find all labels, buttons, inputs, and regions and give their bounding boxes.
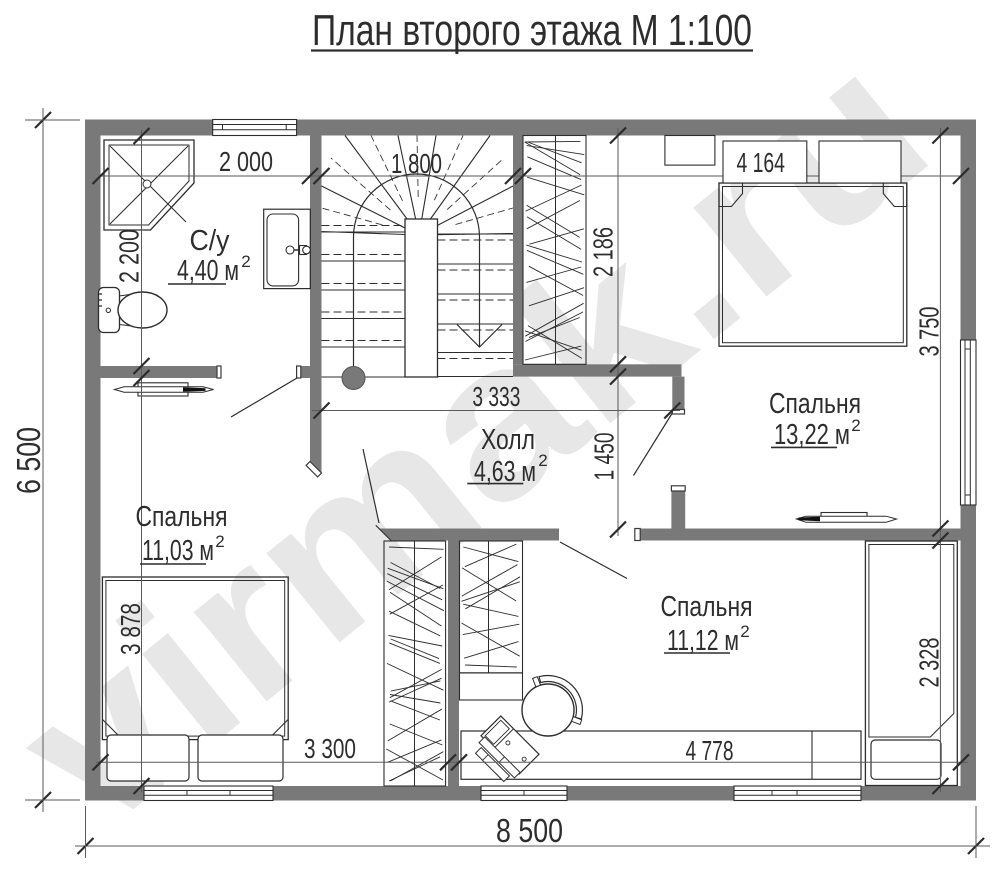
svg-text:2 328: 2 328: [914, 638, 945, 688]
svg-text:План второго этажа М 1:100: План второго этажа М 1:100: [312, 6, 752, 55]
svg-text:2: 2: [851, 416, 860, 435]
svg-text:3 333: 3 333: [472, 381, 520, 412]
svg-text:4 778: 4 778: [686, 735, 734, 766]
svg-text:2 200: 2 200: [114, 229, 145, 283]
svg-text:С/у: С/у: [190, 225, 231, 257]
svg-text:4 164: 4 164: [736, 147, 785, 178]
svg-text:Спальня: Спальня: [661, 591, 753, 623]
svg-text:Спальня: Спальня: [136, 501, 228, 533]
svg-text:11,03 м: 11,03 м: [142, 535, 214, 567]
svg-text:2: 2: [538, 451, 547, 470]
svg-text:Холл: Холл: [481, 424, 535, 456]
svg-text:1 800: 1 800: [391, 148, 442, 179]
svg-text:6 500: 6 500: [10, 427, 47, 494]
svg-text:3 300: 3 300: [304, 733, 356, 764]
svg-text:13,22 м: 13,22 м: [774, 419, 850, 451]
svg-text:2: 2: [740, 622, 749, 641]
svg-text:2 186: 2 186: [588, 227, 619, 277]
svg-text:3 750: 3 750: [914, 307, 945, 357]
svg-text:Спальня: Спальня: [769, 388, 861, 420]
svg-text:3 878: 3 878: [115, 603, 146, 655]
svg-text:2: 2: [215, 532, 224, 551]
svg-text:8 500: 8 500: [496, 812, 563, 849]
svg-text:2: 2: [241, 252, 250, 271]
svg-text:2 000: 2 000: [219, 146, 273, 177]
svg-text:4,40 м: 4,40 м: [177, 255, 239, 287]
svg-text:1 450: 1 450: [589, 433, 620, 481]
